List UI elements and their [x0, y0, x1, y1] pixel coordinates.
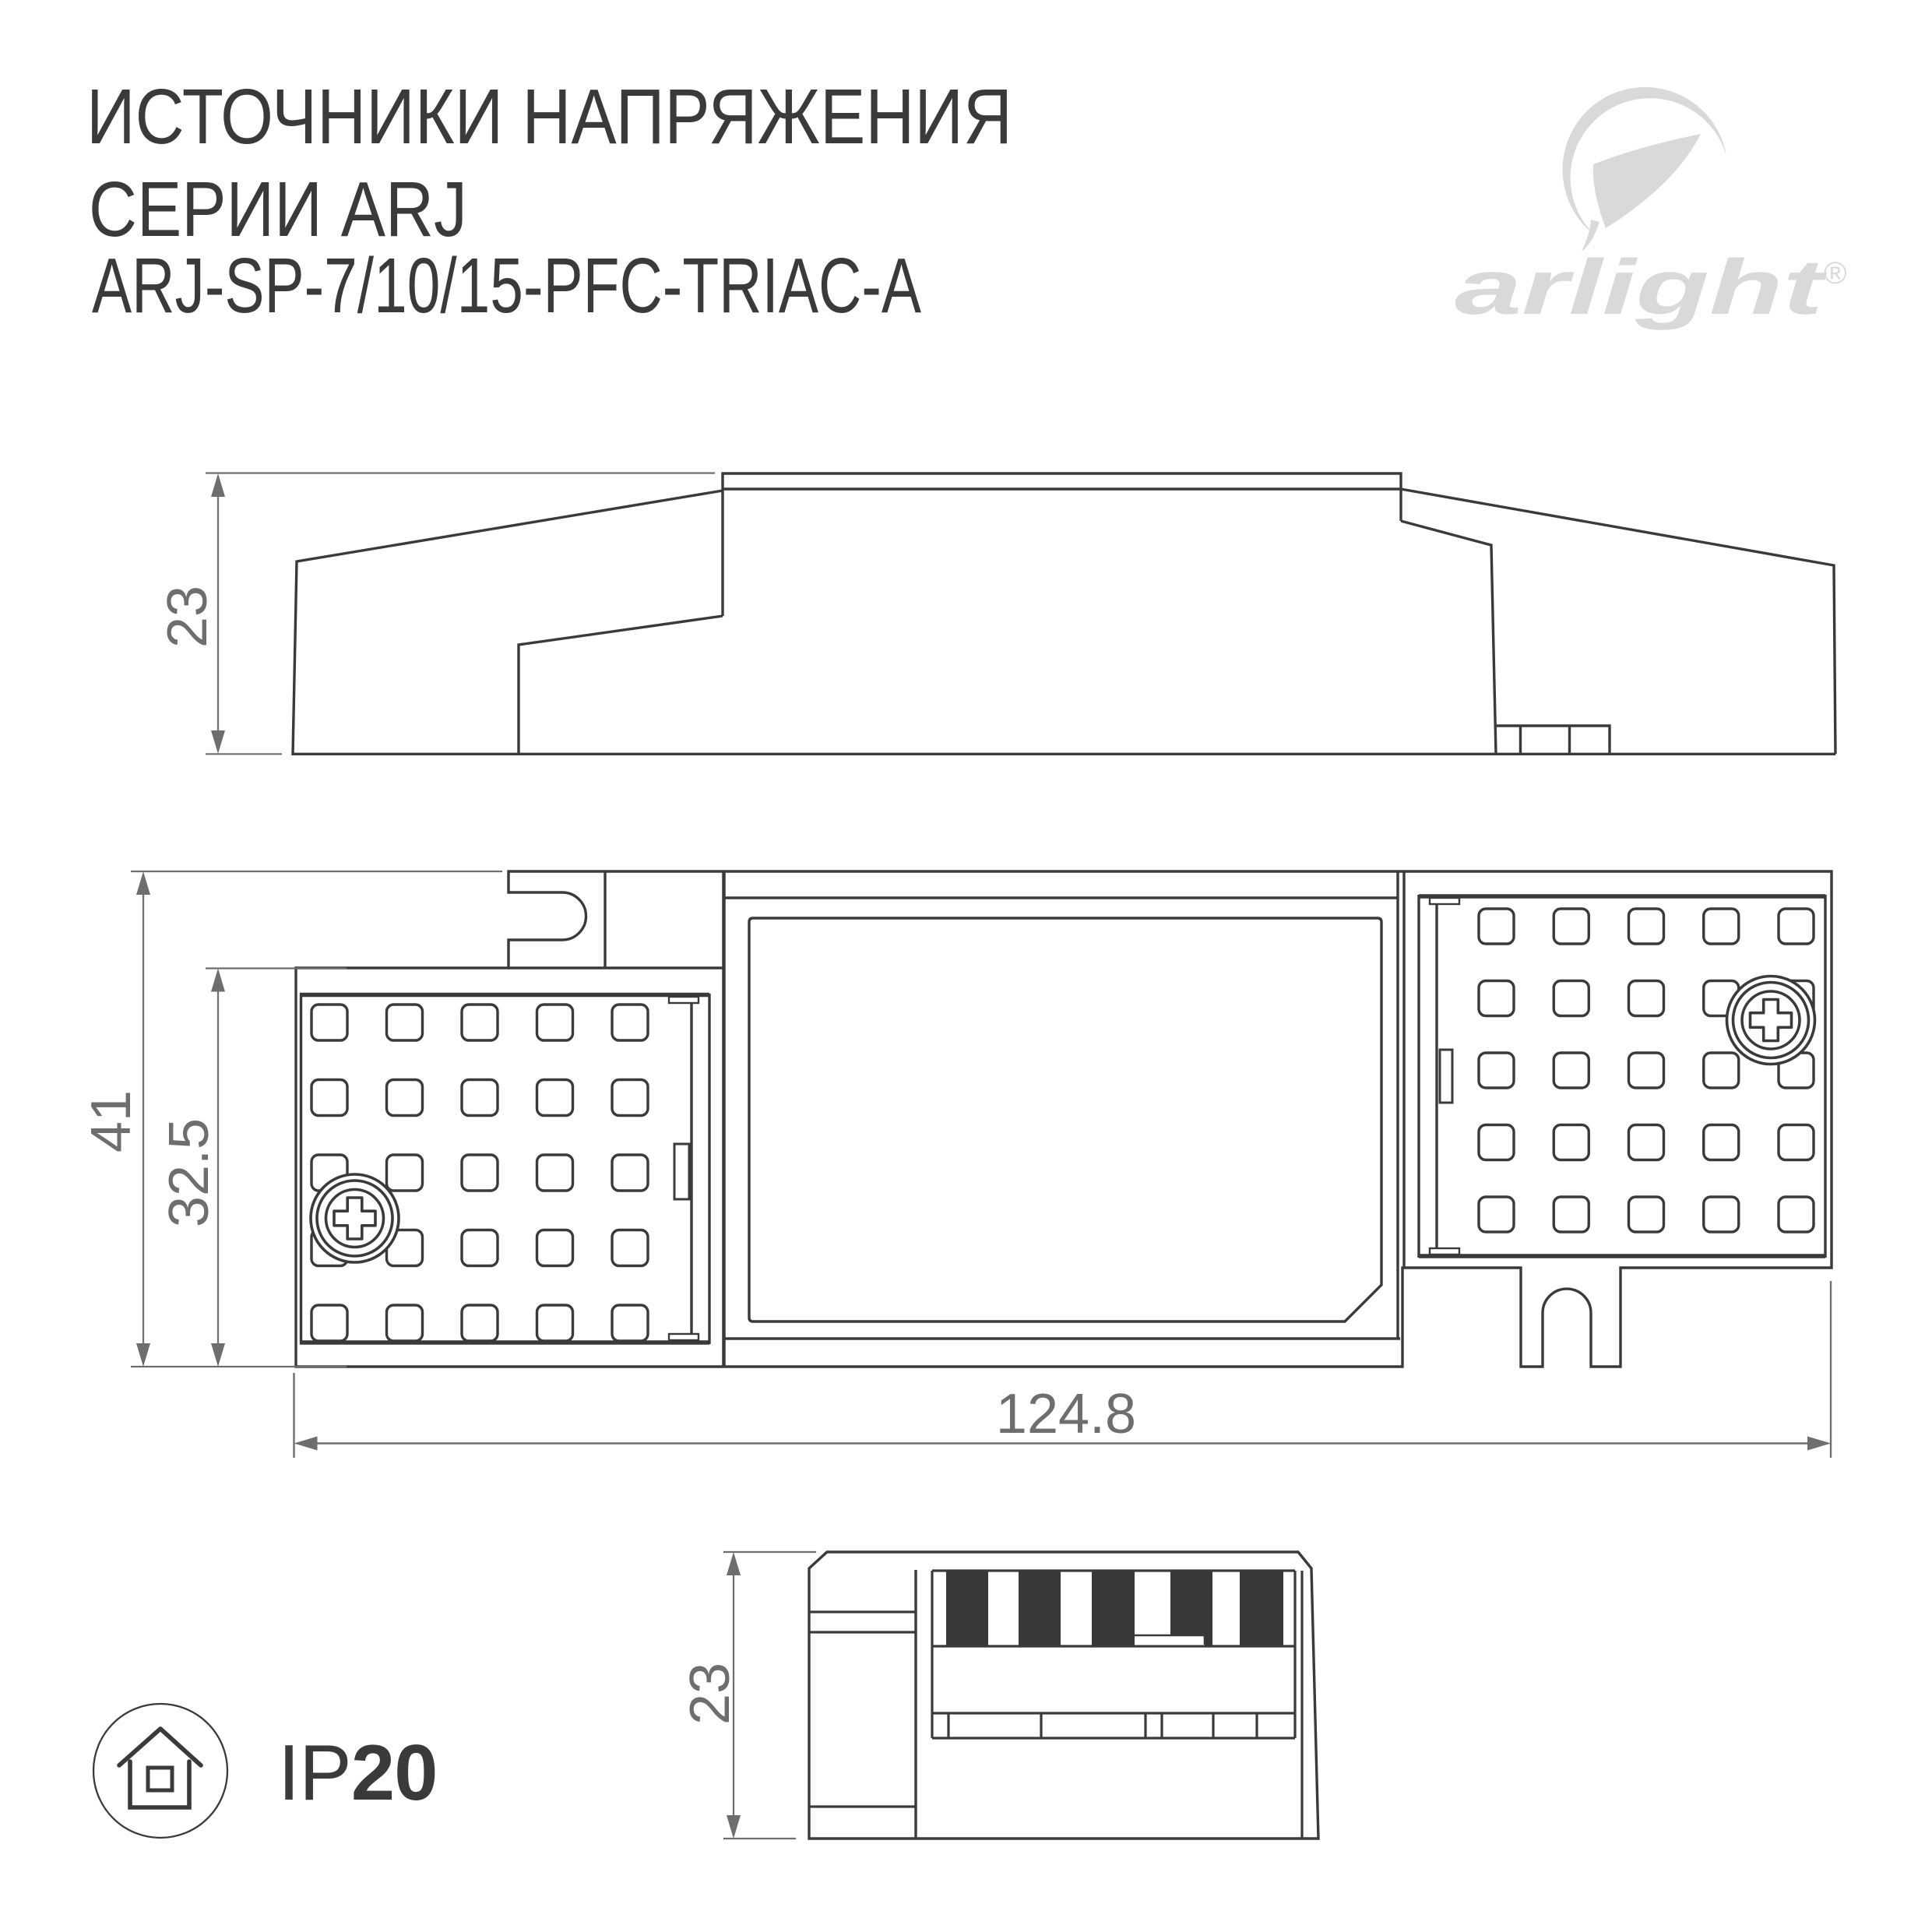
svg-text:41: 41	[80, 1090, 143, 1153]
svg-text:32.5: 32.5	[158, 1118, 220, 1227]
svg-text:ИСТОЧНИКИ НАПРЯЖЕНИЯ: ИСТОЧНИКИ НАПРЯЖЕНИЯ	[86, 73, 1012, 160]
svg-text:СЕРИИ ARJ: СЕРИИ ARJ	[89, 166, 467, 253]
svg-text:124.8: 124.8	[996, 1383, 1136, 1445]
svg-text:23: 23	[679, 1663, 741, 1725]
svg-text:®: ®	[1824, 256, 1846, 290]
svg-text:arlight: arlight	[1455, 244, 1828, 331]
svg-text:ARJ-SP-7/10/15-PFC-TRIAC-A: ARJ-SP-7/10/15-PFC-TRIAC-A	[92, 242, 921, 329]
svg-text:23: 23	[157, 586, 219, 648]
svg-text:IP20: IP20	[278, 1730, 438, 1817]
